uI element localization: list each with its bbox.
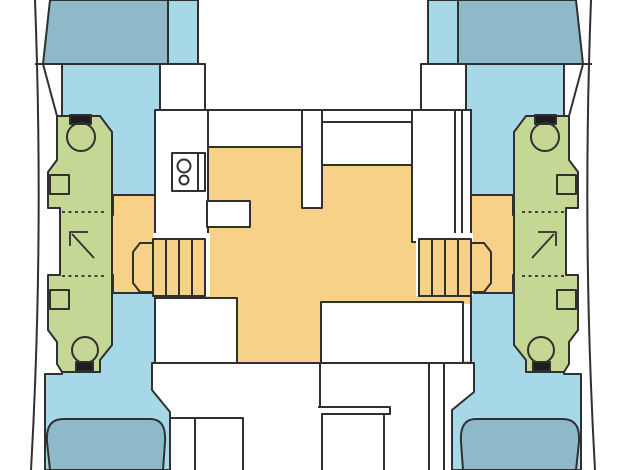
cockpit — [152, 363, 474, 470]
salon-aft-starboard-cabinet — [321, 302, 463, 363]
salon-settee — [322, 110, 412, 165]
cockpit-port-seat — [170, 418, 243, 470]
port-forward-locker — [160, 64, 205, 110]
catamaran-deck-plan — [0, 0, 626, 470]
cockpit-starboard-bench — [429, 363, 444, 470]
sink-icon — [207, 201, 250, 227]
starboard-aft-berth — [461, 419, 579, 470]
salon-aft-starboard-margin — [464, 304, 471, 361]
port-forward-berth-shelf — [168, 0, 198, 64]
salon — [133, 110, 491, 363]
starboard-aft-toilet-tank — [533, 362, 550, 371]
starboard-side-deck-line — [587, 0, 595, 470]
starboard-forward-berth — [458, 0, 583, 64]
starboard-stairs-chamfer — [471, 243, 491, 292]
salon-aft-port-cabinet — [155, 298, 237, 363]
cockpit-table — [318, 407, 390, 470]
stove-side-panel — [198, 153, 205, 191]
port-aft-berth — [47, 419, 165, 470]
starboard-forward-berth-shelf — [428, 0, 458, 64]
port-forward-berth — [43, 0, 168, 64]
salon-partition-column — [302, 110, 322, 208]
starboard-deck-joint-line — [569, 64, 583, 116]
port-deck-joint-line — [43, 64, 57, 116]
port-stairs-chamfer — [133, 243, 153, 292]
port-side-deck-line — [31, 0, 39, 470]
starboard-forward-locker — [421, 64, 466, 110]
port-aft-toilet-tank — [76, 362, 93, 371]
